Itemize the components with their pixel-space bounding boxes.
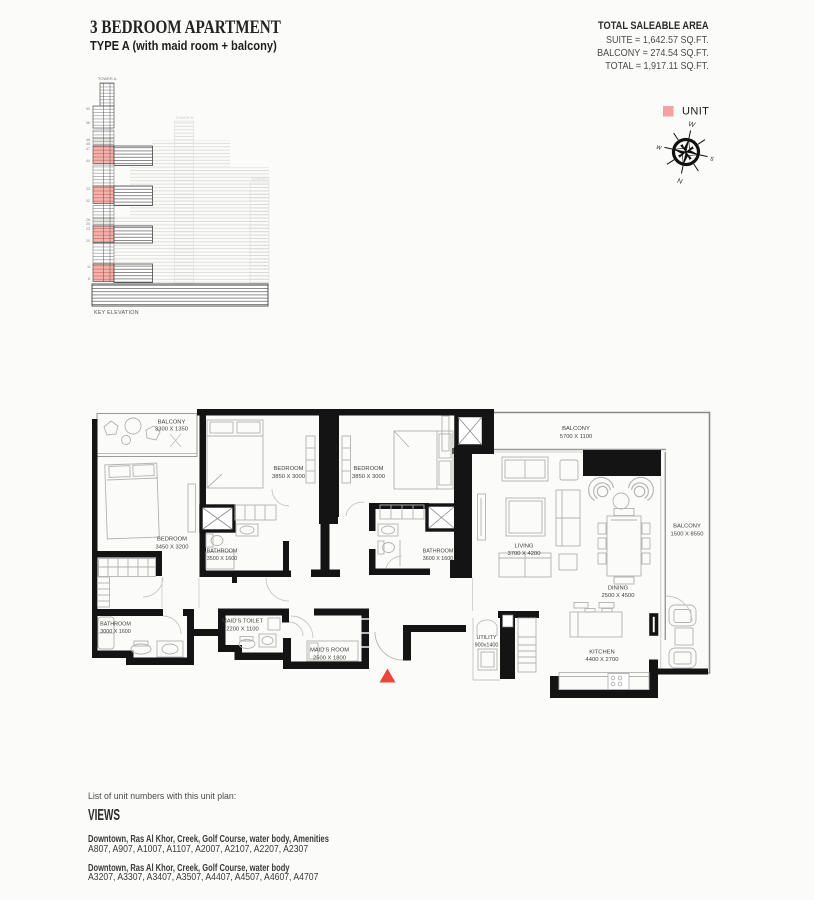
svg-text:BEDROOM: BEDROOM: [157, 537, 187, 543]
svg-text:33: 33: [86, 187, 90, 191]
svg-text:2500 X 4500: 2500 X 4500: [602, 593, 635, 599]
svg-text:UNIT: UNIT: [682, 106, 709, 118]
svg-text:56: 56: [86, 121, 90, 125]
svg-text:BEDROOM: BEDROOM: [274, 466, 304, 472]
svg-text:47: 47: [86, 147, 90, 151]
svg-text:11: 11: [87, 265, 91, 269]
svg-text:MAID'S ROOM: MAID'S ROOM: [310, 648, 349, 654]
svg-text:2500 X 1800: 2500 X 1800: [313, 656, 346, 662]
svg-text:DINING: DINING: [608, 586, 629, 592]
svg-text:4400 X 2700: 4400 X 2700: [586, 657, 619, 663]
svg-text:KITCHEN: KITCHEN: [589, 650, 614, 656]
svg-text:BALCONY: BALCONY: [562, 426, 590, 432]
svg-text:3450 X 3200: 3450 X 3200: [156, 545, 189, 551]
svg-text:BATHROOM: BATHROOM: [100, 622, 131, 628]
svg-text:3850 X 3000: 3850 X 3000: [352, 474, 385, 480]
svg-text:3850 X 3000: 3850 X 3000: [272, 474, 305, 480]
svg-text:5700 X 1100: 5700 X 1100: [560, 434, 592, 440]
svg-text:UTILITY: UTILITY: [476, 635, 496, 641]
svg-text:TOWER A: TOWER A: [98, 76, 117, 81]
svg-text:3500 X 1600: 3500 X 1600: [207, 556, 238, 562]
svg-text:23: 23: [86, 227, 90, 231]
svg-text:8: 8: [88, 277, 90, 281]
svg-text:w: w: [656, 144, 663, 152]
svg-text:TOWER B: TOWER B: [175, 115, 194, 120]
svg-text:2200 X 1100: 2200 X 1100: [226, 627, 258, 633]
svg-text:BALCONY: BALCONY: [673, 524, 701, 530]
svg-text:3600 X 1600: 3600 X 1600: [423, 556, 454, 562]
svg-text:3300 X 1350: 3300 X 1350: [155, 427, 188, 433]
svg-text:BATHROOM: BATHROOM: [207, 549, 238, 555]
svg-text:45: 45: [86, 142, 90, 146]
svg-text:LIVING: LIVING: [514, 544, 533, 550]
svg-text:20: 20: [86, 239, 90, 243]
svg-text:44: 44: [86, 159, 90, 163]
svg-text:s: s: [709, 155, 714, 163]
svg-text:KEY ELEVATION: KEY ELEVATION: [94, 310, 139, 316]
svg-text:BEDROOM: BEDROOM: [354, 466, 384, 472]
svg-text:W: W: [688, 121, 697, 130]
svg-text:3000 X 1600: 3000 X 1600: [100, 629, 131, 635]
svg-text:3700 X 4200: 3700 X 4200: [508, 551, 541, 557]
svg-text:32: 32: [86, 199, 90, 203]
svg-text:BALCONY: BALCONY: [158, 420, 186, 426]
svg-text:N: N: [676, 178, 683, 186]
svg-text:MAID'S TOILET: MAID'S TOILET: [222, 619, 264, 625]
svg-text:50: 50: [86, 107, 90, 111]
svg-text:1500 X 8550: 1500 X 8550: [671, 532, 704, 538]
svg-text:25: 25: [86, 222, 90, 226]
svg-text:900x1400: 900x1400: [475, 643, 499, 649]
svg-text:BATHROOM: BATHROOM: [423, 549, 454, 555]
